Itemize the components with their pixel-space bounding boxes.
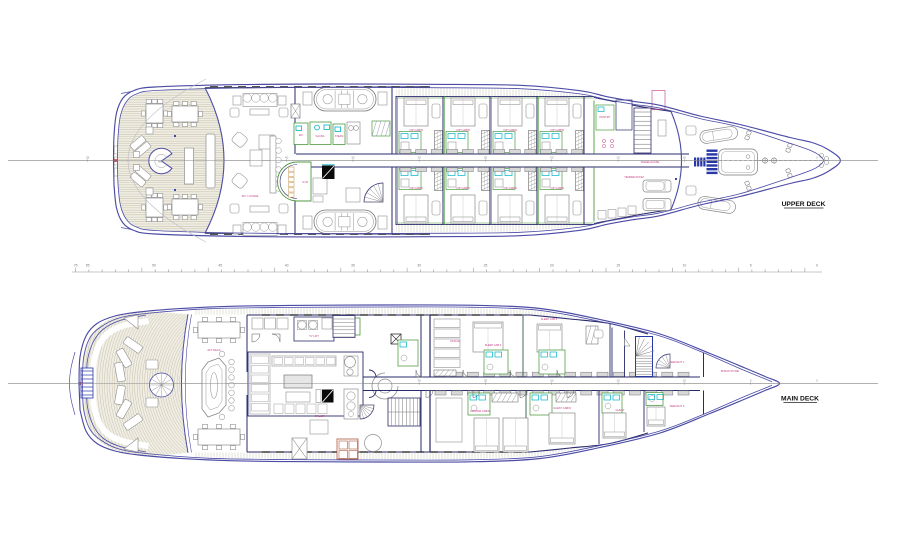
svg-text:55: 55 <box>86 264 90 268</box>
svg-text:TENDER ROOM: TENDER ROOM <box>624 175 643 179</box>
svg-text:25: 25 <box>484 264 488 268</box>
svg-text:20: 20 <box>550 264 554 268</box>
svg-text:WC: WC <box>299 134 303 137</box>
svg-text:VIP CABIN: VIP CABIN <box>456 128 470 132</box>
svg-text:VIP CABIN: VIP CABIN <box>409 128 423 132</box>
svg-text:SKY LOUNGE: SKY LOUNGE <box>242 194 259 198</box>
svg-text:GUEST CABIN: GUEST CABIN <box>553 406 571 410</box>
svg-text:45: 45 <box>218 264 222 268</box>
svg-text:30: 30 <box>418 156 422 160</box>
svg-text:GALLEY: GALLEY <box>315 414 326 418</box>
svg-text:15: 15 <box>616 264 620 268</box>
svg-text:10: 10 <box>683 379 687 383</box>
svg-text:TV LIFT: TV LIFT <box>309 334 319 338</box>
svg-text:MAIN DECK: MAIN DECK <box>781 396 819 403</box>
svg-text:OFFICE: OFFICE <box>450 339 460 343</box>
svg-text:75: 75 <box>74 264 78 268</box>
svg-text:VIP CABIN: VIP CABIN <box>456 186 470 190</box>
svg-text:20: 20 <box>550 379 554 383</box>
svg-text:SERVANT 2: SERVANT 2 <box>670 404 685 408</box>
svg-text:30: 30 <box>418 379 422 383</box>
svg-text:PANTRY: PANTRY <box>599 115 610 119</box>
svg-text:30: 30 <box>417 264 421 268</box>
svg-text:SLEEP CAB 5: SLEEP CAB 5 <box>541 317 558 321</box>
svg-text:40: 40 <box>285 156 289 160</box>
svg-text:0: 0 <box>816 264 818 268</box>
svg-text:VIP CABIN: VIP CABIN <box>550 186 564 190</box>
svg-text:35: 35 <box>351 264 355 268</box>
svg-text:GUEST: GUEST <box>616 408 625 412</box>
svg-text:10: 10 <box>683 264 687 268</box>
svg-text:VIP CABIN: VIP CABIN <box>503 128 517 132</box>
svg-text:WD: WD <box>158 161 162 164</box>
svg-text:10: 10 <box>683 156 687 160</box>
svg-text:GYM: GYM <box>302 181 308 184</box>
svg-text:UPPER DECK: UPPER DECK <box>782 201 826 208</box>
svg-text:40: 40 <box>285 264 289 268</box>
svg-text:15: 15 <box>616 379 620 383</box>
svg-text:15: 15 <box>616 156 620 160</box>
svg-text:SLEEP CAB 4: SLEEP CAB 4 <box>485 343 502 347</box>
svg-text:50: 50 <box>152 264 156 268</box>
svg-text:25: 25 <box>484 379 488 383</box>
svg-text:AFT DECK: AFT DECK <box>207 348 220 352</box>
svg-text:25: 25 <box>484 156 488 160</box>
svg-text:VIP CABIN: VIP CABIN <box>550 128 564 132</box>
svg-text:55: 55 <box>86 156 90 160</box>
svg-text:VIP CABIN: VIP CABIN <box>409 186 423 190</box>
svg-text:MASTER CABIN: MASTER CABIN <box>470 409 490 413</box>
svg-text:20: 20 <box>550 156 554 160</box>
svg-text:SAUNA: SAUNA <box>316 134 325 138</box>
svg-text:5: 5 <box>750 264 752 268</box>
svg-text:SERVANT 1: SERVANT 1 <box>670 360 685 364</box>
svg-text:STEAM: STEAM <box>335 135 344 138</box>
svg-text:VIP CABIN: VIP CABIN <box>503 186 517 190</box>
svg-text:BOSUN STORE: BOSUN STORE <box>721 370 739 373</box>
svg-text:35: 35 <box>351 156 355 160</box>
